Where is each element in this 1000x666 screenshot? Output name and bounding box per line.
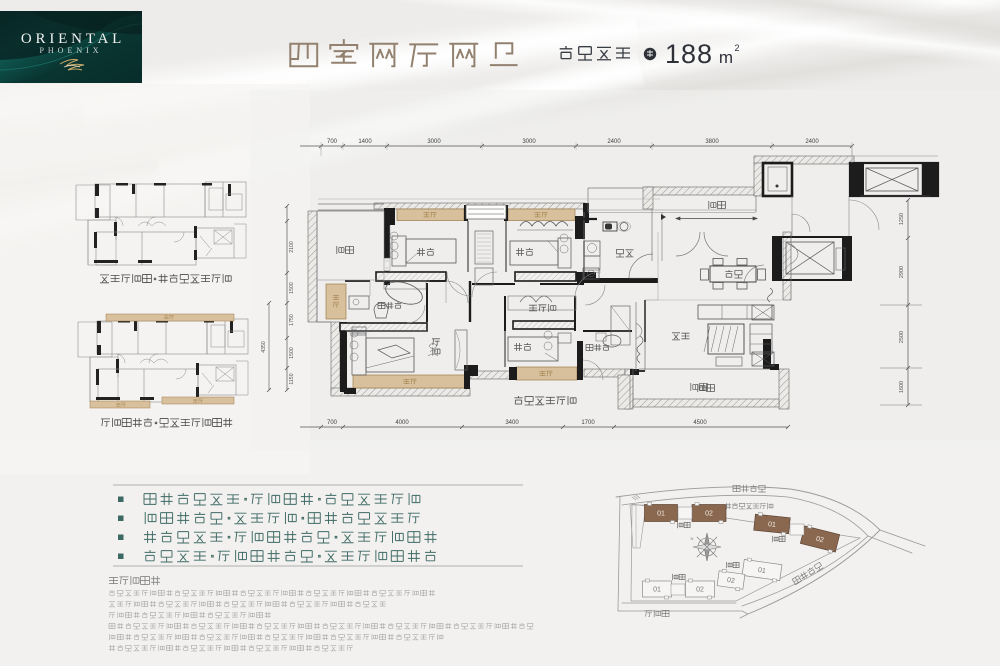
svg-text:01: 01 [653, 587, 661, 594]
svg-text:PHOENIX: PHOENIX [39, 46, 102, 55]
svg-text:2400: 2400 [607, 139, 621, 145]
svg-text:2100: 2100 [289, 241, 295, 253]
svg-text:02: 02 [696, 587, 704, 594]
svg-text:N: N [691, 536, 694, 541]
svg-text:1700: 1700 [581, 420, 595, 426]
svg-text:3000: 3000 [427, 139, 441, 145]
svg-text:700: 700 [327, 139, 338, 145]
svg-text:1400: 1400 [358, 139, 372, 145]
svg-text:188: 188 [665, 39, 713, 69]
svg-text:ORIENTAL: ORIENTAL [21, 31, 125, 47]
svg-text:4350: 4350 [261, 341, 267, 353]
svg-text:3000: 3000 [522, 139, 536, 145]
svg-text:4500: 4500 [693, 420, 707, 426]
svg-text:1750: 1750 [289, 314, 295, 326]
svg-text:2400: 2400 [805, 139, 819, 145]
svg-text:4000: 4000 [395, 420, 409, 426]
svg-text:700: 700 [327, 420, 338, 426]
svg-text:1500: 1500 [289, 282, 295, 294]
svg-text:1500: 1500 [289, 347, 295, 359]
svg-text:3400: 3400 [505, 420, 519, 426]
svg-text:1150: 1150 [289, 373, 295, 384]
svg-text:2: 2 [734, 43, 739, 53]
svg-text:1250: 1250 [899, 213, 905, 225]
svg-text:m: m [719, 48, 733, 67]
svg-text:1600: 1600 [899, 381, 905, 393]
svg-text:01: 01 [758, 567, 767, 575]
svg-text:01: 01 [768, 521, 777, 529]
svg-text:2900: 2900 [899, 266, 905, 278]
svg-text:02: 02 [727, 577, 736, 585]
svg-text:02: 02 [705, 511, 713, 518]
svg-text:3800: 3800 [705, 139, 719, 145]
svg-text:01: 01 [657, 511, 665, 518]
svg-text:2500: 2500 [899, 331, 905, 343]
